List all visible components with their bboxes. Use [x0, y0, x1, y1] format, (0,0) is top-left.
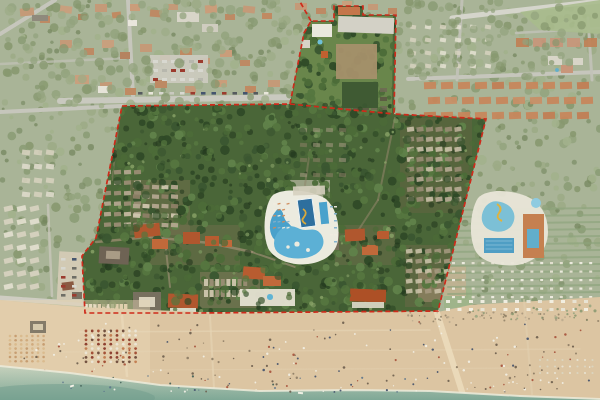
- aerial-photo-svg: [0, 0, 600, 400]
- beach-structure: [30, 321, 46, 333]
- aerial-map-view: [0, 0, 600, 400]
